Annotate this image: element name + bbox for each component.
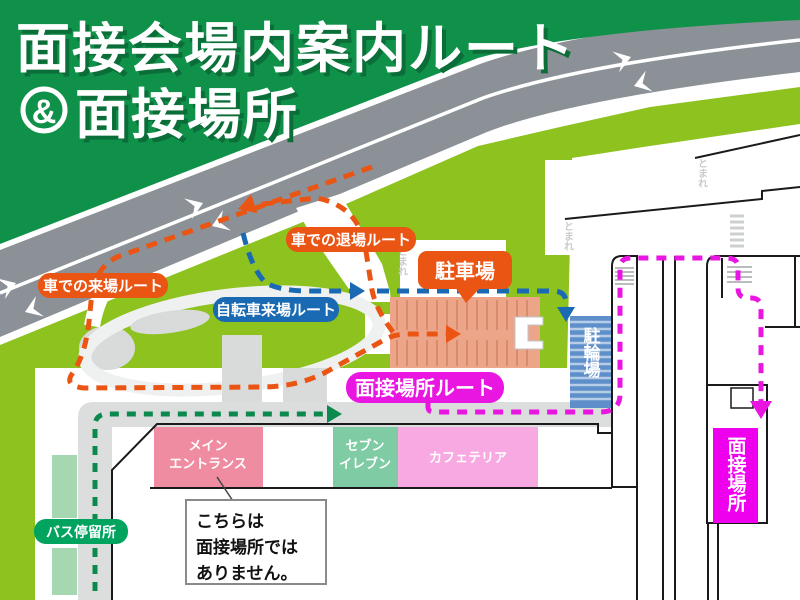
road-marking-text-2: とまれ — [696, 158, 708, 188]
east-forecourt — [545, 160, 612, 255]
callout-line-1: こちらは — [196, 512, 264, 531]
road-marking-text-3: とまれ — [562, 221, 574, 251]
title-line2: 面接場所 — [75, 85, 299, 145]
bus-platform-north — [52, 455, 77, 518]
interview-building-annex — [731, 388, 753, 408]
bus-stop-label: バス停留所 — [46, 524, 116, 540]
bus-platform-south — [52, 548, 77, 595]
bicycle-parking: 駐輪場 — [570, 316, 611, 408]
campus-map: 駐輪場 メイン エントランス セブン イレブン カフェテリア とまれ — [0, 0, 800, 600]
map-canvas: 駐輪場 メイン エントランス セブン イレブン カフェテリア とまれ — [0, 0, 800, 600]
bicycle-parking-label: 駐輪場 — [581, 326, 601, 379]
interview-route-label: 面接場所ルート — [355, 377, 495, 400]
car-exit-label: 車での退場ルート — [291, 231, 411, 249]
title-ampersand: & — [32, 93, 57, 131]
car-arrival-label: 車での来場ルート — [43, 277, 163, 295]
south-path-a — [222, 335, 262, 405]
callout-line-3: ありません。 — [196, 564, 298, 583]
callout-line-2: 面接場所では — [196, 537, 298, 557]
parking-label: 駐車場 — [435, 259, 495, 283]
bicycle-label: 自転車来場ルート — [216, 301, 336, 319]
interview-room-label: 面接場所 — [725, 436, 747, 513]
title-line1: 面接会場内案内ルート — [16, 19, 576, 79]
